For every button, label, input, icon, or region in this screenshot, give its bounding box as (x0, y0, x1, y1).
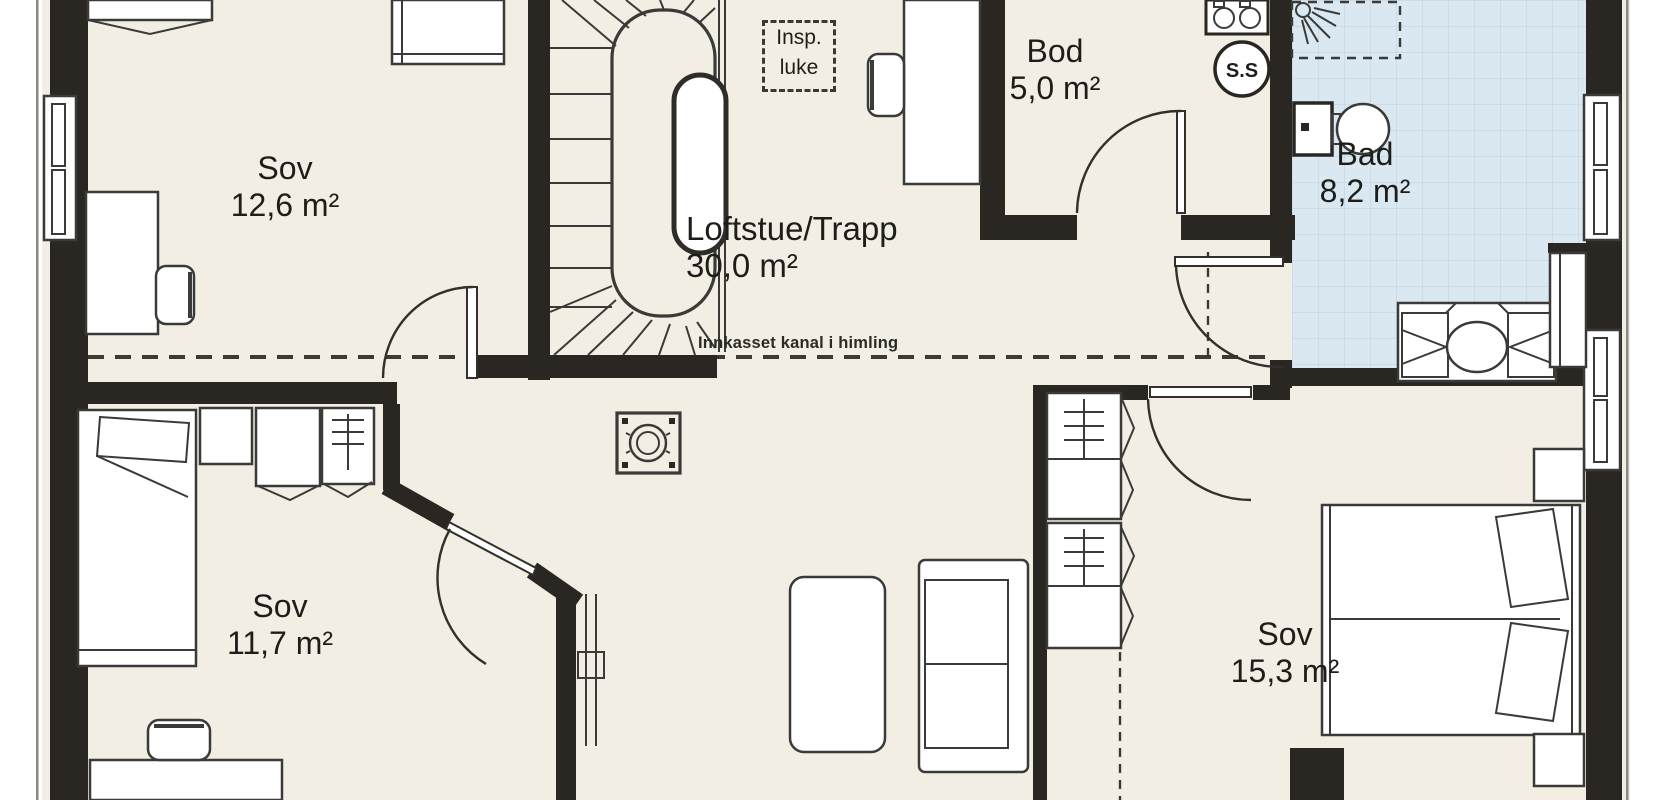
chair-bottomleft (148, 720, 210, 760)
floor-plan-canvas: S.S (0, 0, 1670, 800)
vanity-sink (1398, 303, 1556, 381)
coffee-table (790, 577, 885, 752)
room-area: 11,7 m² (227, 625, 333, 661)
wardrobe-right-1 (1047, 393, 1134, 519)
desk-bottomleft (90, 760, 282, 800)
room-name: Sov (257, 150, 312, 186)
room-label-sov-topleft: Sov 12,6 m² (160, 150, 410, 224)
room-name: Sov (1257, 616, 1312, 652)
bathroom-cabinet (1550, 253, 1586, 367)
room-area: 8,2 m² (1320, 173, 1411, 209)
window-left (44, 96, 76, 240)
room-area: 15,3 m² (1231, 653, 1339, 689)
window-bedroom-right (1584, 330, 1620, 470)
room-name: Loftstue/Trapp (686, 210, 898, 247)
duct-annotation: Innkasset kanal i himling (698, 334, 898, 353)
room-area: 5,0 m² (1010, 70, 1101, 106)
hatch-line1: Insp. (776, 26, 822, 49)
ss-label: S.S (1226, 60, 1258, 82)
room-area: 30,0 m² (686, 247, 798, 284)
room-label-bad: Bad 8,2 m² (1290, 136, 1440, 210)
single-bed-bottomleft (78, 410, 196, 666)
room-name: Sov (252, 588, 307, 624)
central-vacuum-icon: S.S (1215, 42, 1269, 96)
floor-plan-drawing: S.S (0, 0, 1670, 800)
chimney (1290, 748, 1344, 800)
chair-topleft (156, 266, 194, 324)
window-bathroom-right (1584, 95, 1620, 240)
wardrobe-right-2 (1047, 523, 1134, 648)
room-name: Bod (1027, 33, 1084, 69)
desk-hall (904, 0, 980, 184)
room-name: Bad (1337, 136, 1394, 172)
stove-top-icon (1206, 0, 1268, 34)
single-bed-topleft (392, 0, 504, 64)
hatch-line2: luke (780, 56, 819, 79)
room-label-loftstue: Loftstue/Trapp 30,0 m² (686, 210, 1006, 284)
room-label-sov-right: Sov 15,3 m² (1195, 616, 1375, 690)
room-label-sov-bottomleft: Sov 11,7 m² (195, 588, 365, 662)
room-label-bod: Bod 5,0 m² (980, 33, 1130, 107)
nightstand-bottom (1534, 734, 1584, 786)
inspection-hatch-label: Insp. luke (762, 20, 836, 92)
room-area: 12,6 m² (231, 187, 339, 223)
desk-topleft (86, 192, 158, 334)
sofa (919, 560, 1028, 772)
chair-hall (868, 54, 904, 116)
nightstand-top (1534, 449, 1584, 501)
